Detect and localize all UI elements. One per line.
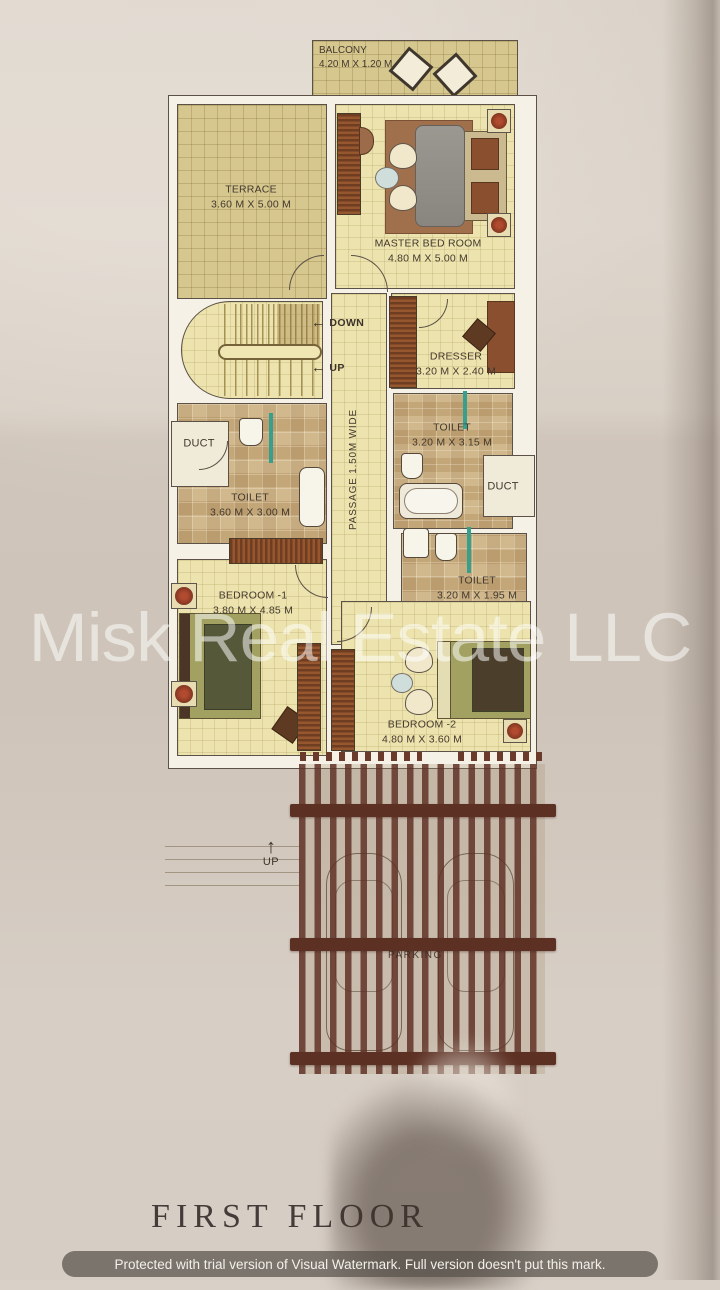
porch-edge — [458, 752, 542, 761]
porch-edge — [300, 752, 422, 761]
hall-wardrobe — [229, 538, 323, 564]
round-table — [375, 167, 399, 189]
duct-left-label: DUCT — [183, 436, 214, 451]
master-nightstand — [471, 182, 499, 214]
toilet-fixture — [435, 533, 457, 561]
room-label-toilet-master: TOILET 3.20 M X 3.15 M — [412, 420, 492, 449]
armchair — [389, 185, 417, 211]
watermark-text: Misk Real Estate LLC — [0, 598, 720, 677]
master-nightstand — [471, 138, 499, 170]
plant-pot — [487, 109, 511, 133]
balcony-chair — [432, 52, 477, 97]
exterior-stairs-up-indicator: ↑ UP — [254, 838, 288, 868]
arrow-left-icon: ← — [311, 363, 326, 373]
stair-handrail — [218, 344, 322, 360]
pergola-beam — [290, 804, 556, 817]
watermark-bottom-bar: Protected with trial version of Visual W… — [62, 1251, 658, 1277]
washbasin — [403, 528, 429, 558]
stairwell — [181, 301, 323, 399]
duct-right-label: DUCT — [487, 479, 518, 494]
parking-label: PARKING — [388, 950, 443, 961]
arrow-left-icon: ← — [311, 318, 326, 328]
room-label-terrace: TERRACE 3.60 M X 5.00 M — [211, 182, 291, 211]
arrow-up-icon: ↑ — [254, 838, 288, 856]
stairs-down-indicator: ← DOWN — [311, 317, 364, 329]
page-title: FIRST FLOOR — [150, 1198, 430, 1236]
stairs-up-indicator: ← UP — [311, 362, 345, 374]
master-wardrobe — [337, 113, 361, 215]
toilet-fixture — [239, 418, 263, 446]
armchair — [389, 143, 417, 169]
toilet-fixture — [401, 453, 423, 479]
room-label-dresser: DRESSER 3.20 M X 2.40 M — [416, 349, 496, 378]
plant-pot — [503, 719, 527, 743]
dresser-wardrobe — [389, 296, 417, 388]
lamp-table — [171, 681, 197, 707]
room-balcony: BALCONY 4.20 M X 1.20 M — [312, 40, 518, 96]
bathtub — [399, 483, 463, 519]
pergola-beam — [290, 1052, 556, 1065]
passage — [331, 293, 387, 645]
room-label-bedroom2: BEDROOM -2 4.80 M X 3.60 M — [382, 717, 462, 746]
plant-pot — [487, 213, 511, 237]
armchair — [405, 689, 433, 715]
balcony-chair — [388, 46, 433, 91]
room-label-master: MASTER BED ROOM 4.80 M X 5.00 M — [375, 236, 482, 265]
toilet-partition — [467, 527, 471, 573]
toilet-partition — [269, 413, 273, 463]
passage-label: PASSAGE 1.50M WIDE — [348, 398, 359, 530]
room-label-toilet-left: TOILET 3.60 M X 3.00 M — [210, 490, 290, 519]
washbasin — [299, 467, 325, 527]
master-bed — [415, 125, 465, 227]
room-label-balcony: BALCONY 4.20 M X 1.20 M — [319, 44, 392, 71]
